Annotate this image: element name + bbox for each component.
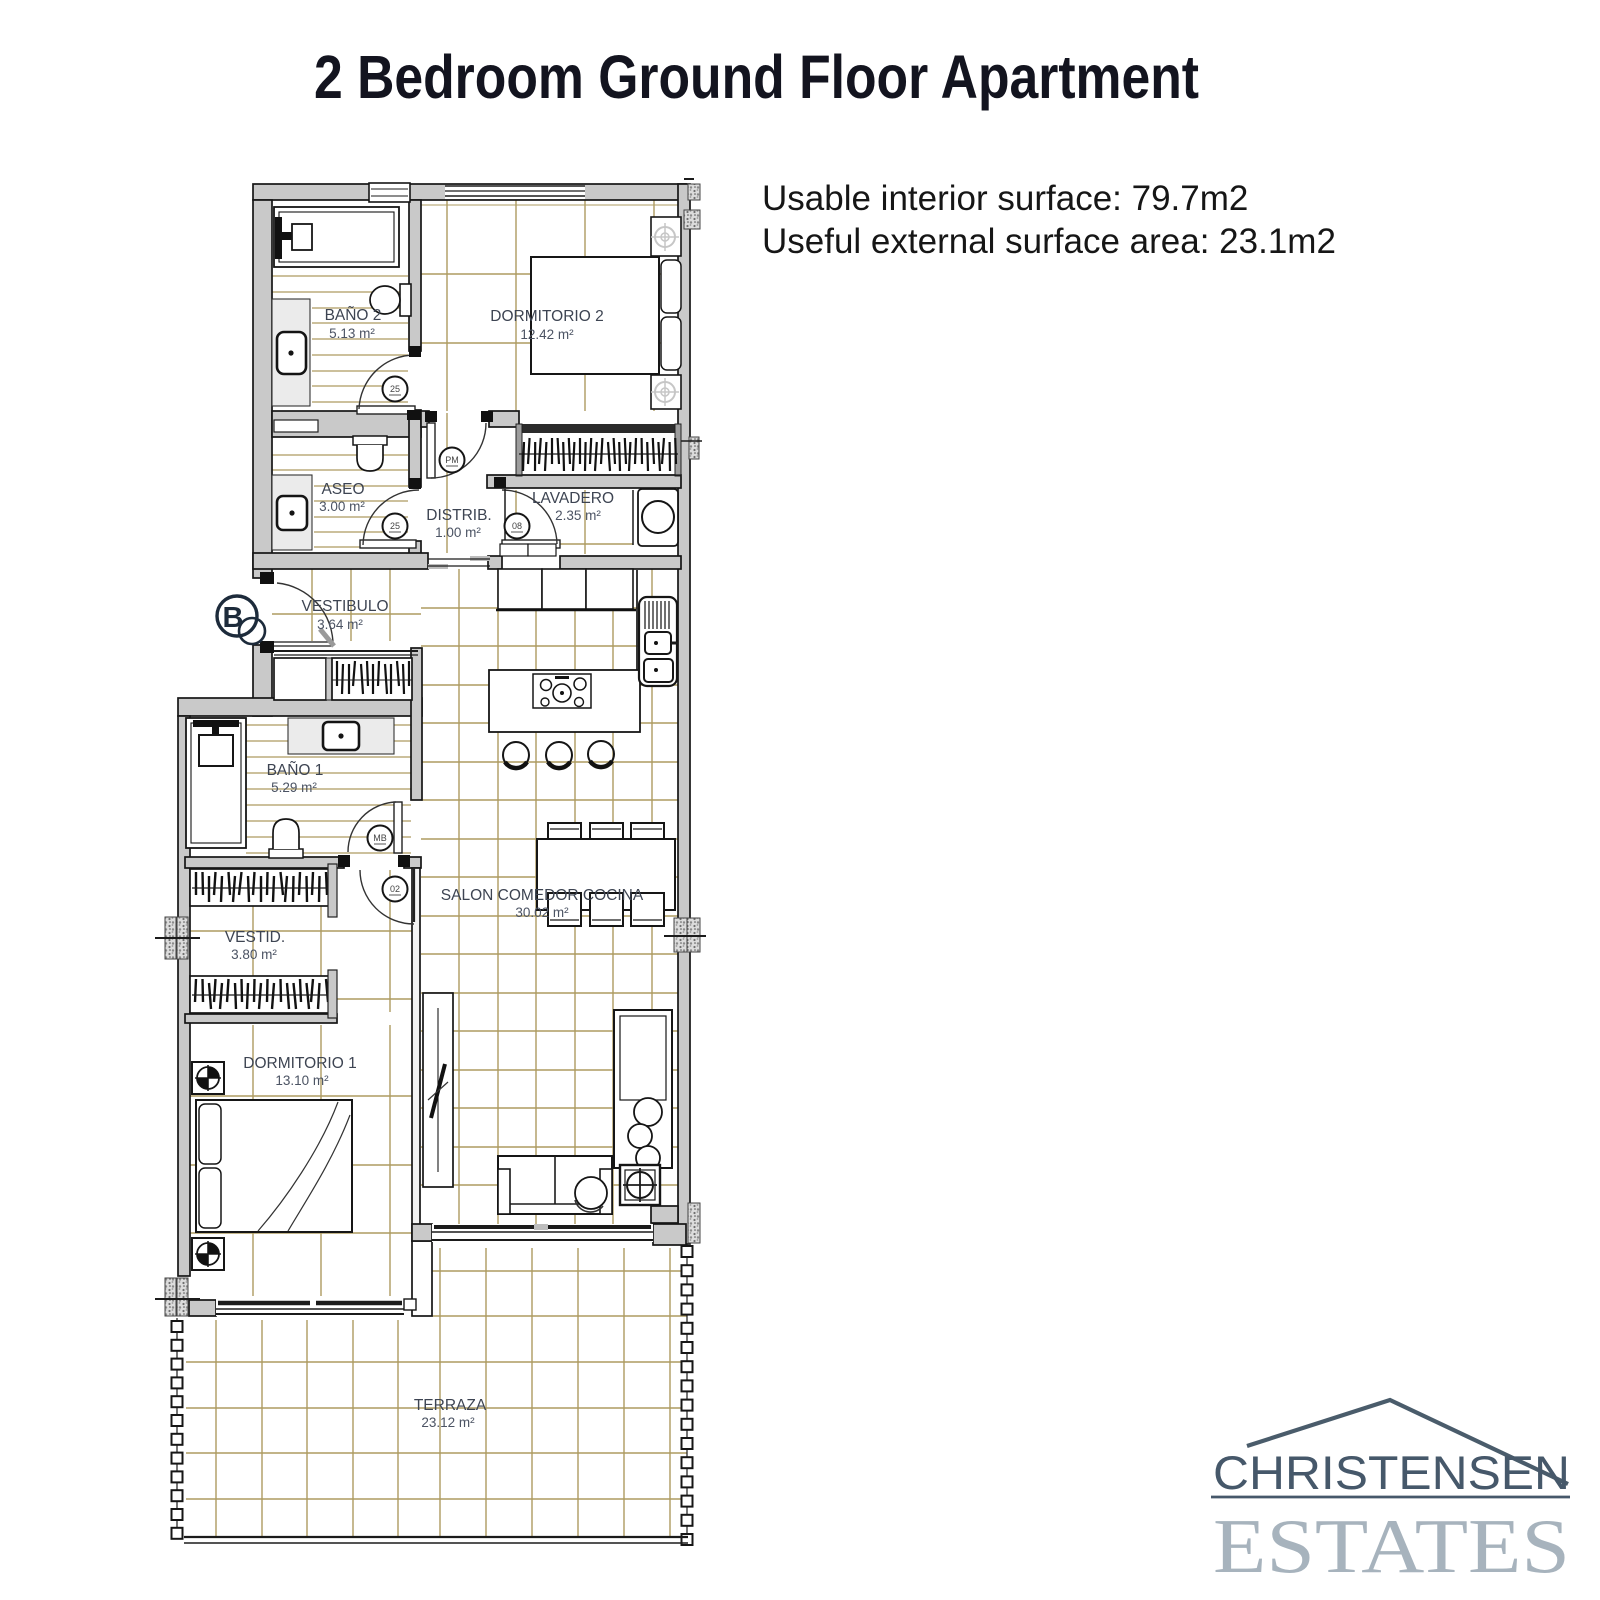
svg-text:2.35 m²: 2.35 m² xyxy=(555,508,601,523)
svg-text:VESTIBULO: VESTIBULO xyxy=(302,598,389,615)
svg-text:5.13 m²: 5.13 m² xyxy=(329,326,375,341)
svg-text:MB: MB xyxy=(373,833,387,843)
svg-text:PM: PM xyxy=(445,455,459,465)
svg-text:LAVADERO: LAVADERO xyxy=(532,490,614,507)
svg-text:BAÑO 2: BAÑO 2 xyxy=(325,307,382,324)
svg-text:25: 25 xyxy=(390,521,400,531)
svg-text:25: 25 xyxy=(390,384,400,394)
svg-text:DORMITORIO 2: DORMITORIO 2 xyxy=(490,308,603,325)
svg-text:12.42 m²: 12.42 m² xyxy=(520,327,574,342)
svg-text:1.00 m²: 1.00 m² xyxy=(435,525,481,540)
svg-text:BAÑO 1: BAÑO 1 xyxy=(267,762,324,779)
svg-text:CHRISTENSEN: CHRISTENSEN xyxy=(1213,1446,1570,1499)
svg-text:2 Bedroom Ground Floor Apartme: 2 Bedroom Ground Floor Apartment xyxy=(314,43,1199,111)
svg-text:TERRAZA: TERRAZA xyxy=(414,1397,487,1414)
svg-text:DISTRIB.: DISTRIB. xyxy=(426,507,491,524)
svg-text:13.10 m²: 13.10 m² xyxy=(275,1073,329,1088)
svg-text:B: B xyxy=(223,602,244,634)
svg-text:02: 02 xyxy=(390,884,400,894)
svg-text:30.02 m²: 30.02 m² xyxy=(515,905,569,920)
svg-text:5.29 m²: 5.29 m² xyxy=(271,780,317,795)
svg-text:SALON COMEDOR COCINA: SALON COMEDOR COCINA xyxy=(441,887,644,904)
svg-text:3.00 m²: 3.00 m² xyxy=(319,499,365,514)
svg-text:Useful external surface area:: Useful external surface area: 23.1m2 xyxy=(762,222,1336,261)
svg-text:ASEO: ASEO xyxy=(321,481,364,498)
svg-text:DORMITORIO 1: DORMITORIO 1 xyxy=(243,1055,356,1072)
svg-text:23.12 m²: 23.12 m² xyxy=(421,1415,475,1430)
svg-text:Usable interior surface: 79.7m: Usable interior surface: 79.7m2 xyxy=(762,179,1248,218)
svg-text:VESTID.: VESTID. xyxy=(225,929,285,946)
svg-text:3.64 m²: 3.64 m² xyxy=(317,617,363,632)
svg-text:ESTATES: ESTATES xyxy=(1213,1503,1570,1589)
svg-text:08: 08 xyxy=(512,521,522,531)
svg-text:3.80 m²: 3.80 m² xyxy=(231,947,277,962)
